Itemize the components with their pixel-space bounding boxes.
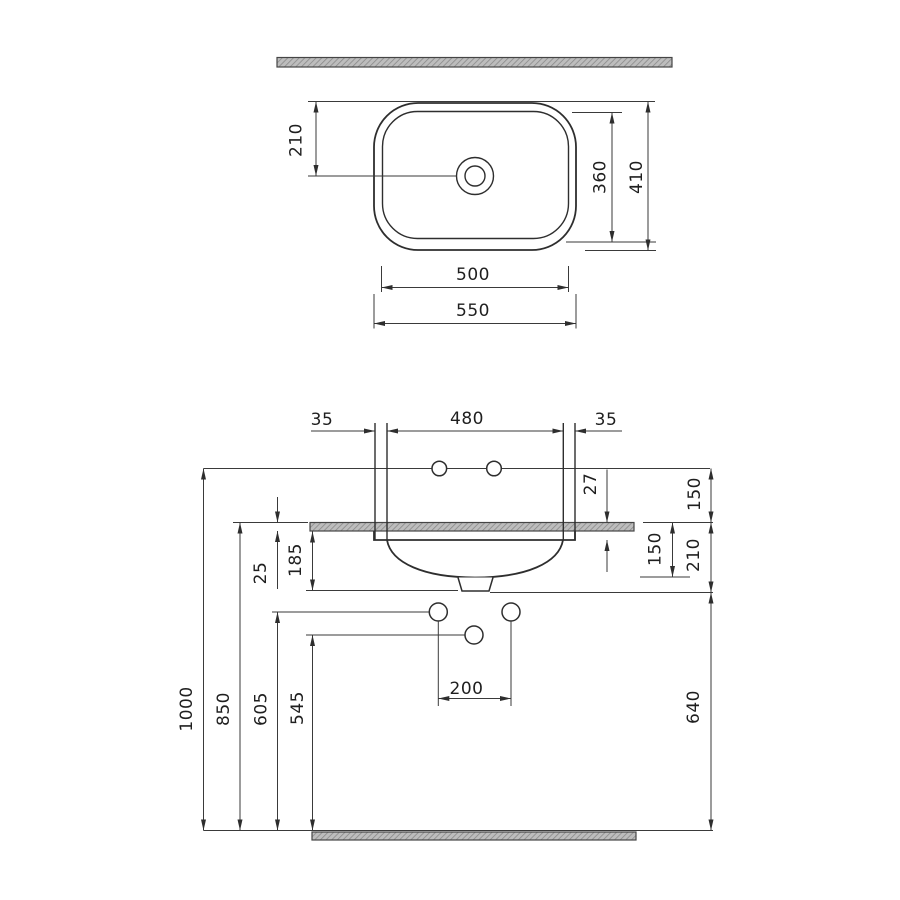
- dim-label-drain-offset: 210: [287, 123, 307, 157]
- dim-label-rim-drop: 27: [581, 473, 601, 496]
- floor-section: [312, 832, 636, 840]
- countertop-section: [310, 523, 634, 532]
- background: [0, 0, 900, 900]
- drain-outlet-section: [458, 578, 493, 592]
- dim-label-trap-height: 545: [288, 691, 308, 725]
- technical-drawing: 210 360 410 500 550 35 480 35: [0, 0, 900, 900]
- dim-label-margin-left: 35: [311, 410, 334, 430]
- dim-label-total-height: 1000: [177, 686, 197, 731]
- dim-label-margin-right: 35: [595, 410, 618, 430]
- fixing-hole-right: [487, 461, 502, 476]
- counter-edge-strip: [277, 58, 672, 68]
- dim-label-supply-height: 605: [252, 692, 272, 726]
- dim-label-outer-width: 550: [456, 301, 490, 321]
- dim-label-drain-spacing: 200: [450, 679, 484, 699]
- supply-hole-right: [502, 603, 520, 621]
- dim-label-basin-overall: 185: [286, 543, 306, 577]
- trap-hole-center: [465, 626, 483, 644]
- supply-hole-left: [429, 603, 447, 621]
- dim-label-inner-width: 500: [456, 265, 490, 285]
- dim-label-inner-depth: 360: [591, 160, 611, 194]
- dim-label-counter-height: 850: [214, 692, 234, 726]
- dim-label-wall-to-counter: 150: [685, 477, 705, 511]
- dim-label-drain-height: 640: [684, 690, 704, 724]
- dim-label-counter-to-trap: 210: [684, 538, 704, 572]
- dim-label-faucet-span: 480: [450, 409, 484, 429]
- dim-label-counter-thickness: 25: [251, 562, 271, 585]
- dim-label-outer-depth: 410: [627, 160, 647, 194]
- dim-label-basin-depth: 150: [646, 532, 666, 566]
- fixing-hole-left: [432, 461, 447, 476]
